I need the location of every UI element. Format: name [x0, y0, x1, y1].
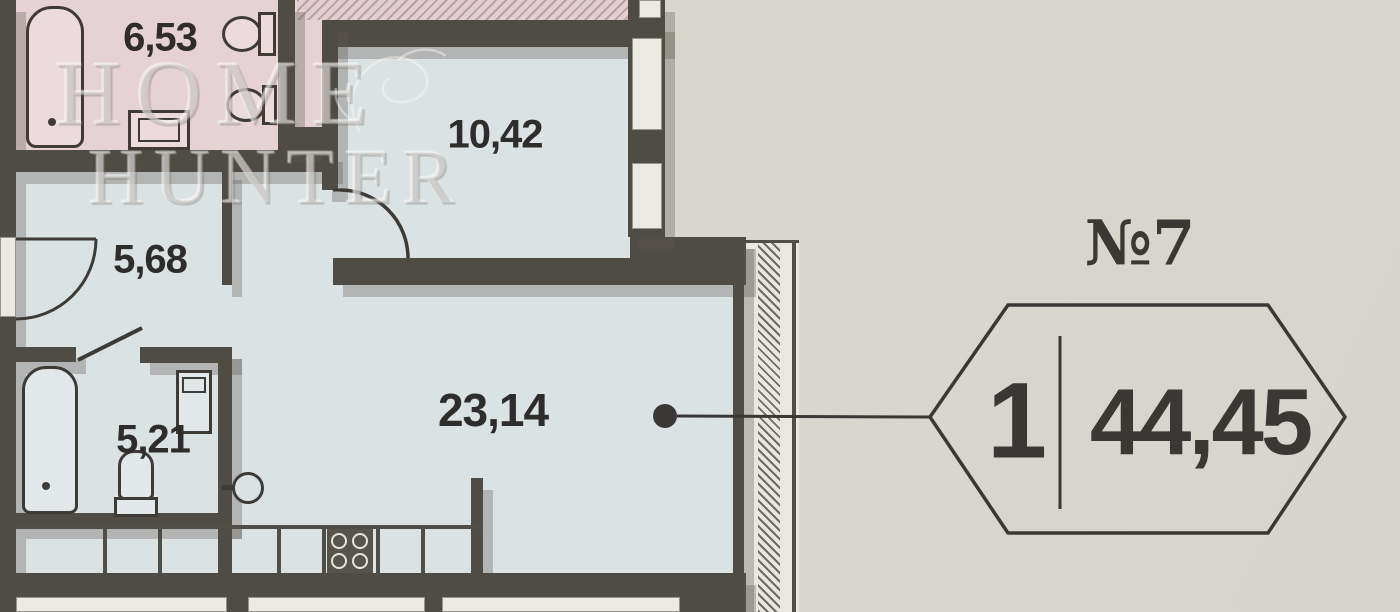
plan-linework: [0, 0, 1400, 612]
floorplan-page: 6,53 10,42 5,68 5,21 23,14 HOME HUNTER №…: [0, 0, 1400, 612]
bathroom-door-leaf: [78, 328, 142, 360]
entrance-door-arc: [16, 239, 96, 319]
bedroom-door-arc: [340, 190, 408, 258]
room-area-label: 23,14: [438, 383, 548, 437]
apartment-number-label: №7: [1085, 207, 1196, 280]
room-area-label: 5,68: [113, 238, 187, 283]
badge-total-area: 44,45: [1090, 368, 1310, 476]
callout-dot: [653, 404, 677, 428]
room-area-label: 10,42: [447, 113, 542, 158]
room-area-label: 6,53: [123, 16, 197, 61]
badge-rooms-count: 1: [987, 358, 1047, 483]
watermark-bird-icon: [336, 50, 446, 132]
callout-line: [677, 416, 930, 417]
room-area-label: 5,21: [116, 418, 190, 463]
